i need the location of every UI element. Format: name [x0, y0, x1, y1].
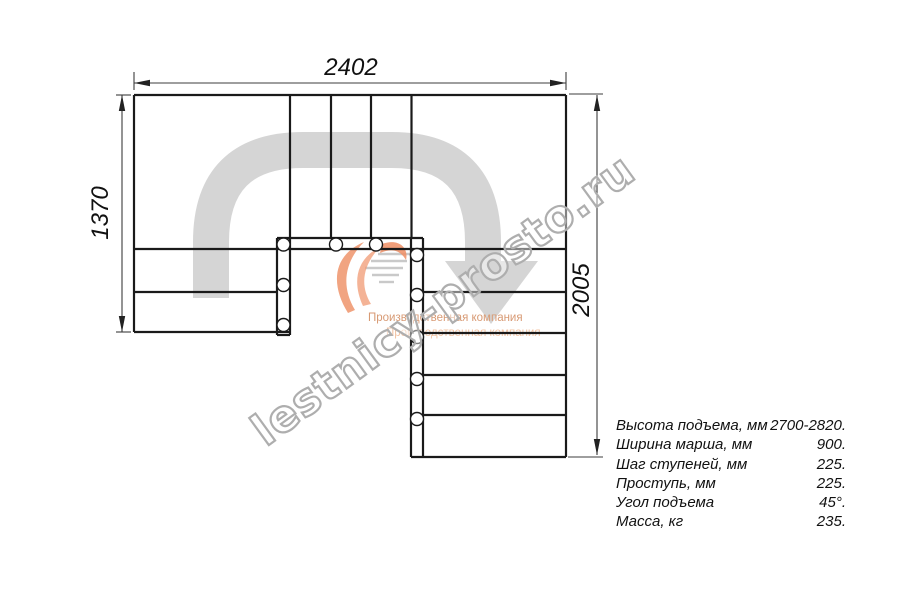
spec-row-mass: Масса, кг 235.: [616, 512, 846, 531]
spec-row-height: Высота подъема, мм 2700-2820.: [616, 416, 846, 435]
spec-row-step-pitch: Шаг ступеней, мм 225.: [616, 455, 846, 474]
spec-value: 900.: [817, 435, 846, 454]
dim-label-left-height: 1370: [87, 186, 114, 240]
spec-value: 235.: [817, 512, 846, 531]
staircase-drawing-canvas: Производственная компания Производственн…: [0, 0, 900, 600]
spec-value: 2700-2820.: [770, 416, 846, 435]
spec-label: Проступь, мм: [616, 474, 716, 493]
spec-row-march-width: Ширина марша, мм 900.: [616, 435, 846, 454]
spec-label: Масса, кг: [616, 512, 683, 531]
spec-row-angle: Угол подъема 45°.: [616, 493, 846, 512]
spec-value: 225.: [817, 474, 846, 493]
dim-label-right-height: 2005: [568, 263, 595, 318]
spec-value: 45°.: [819, 493, 846, 512]
dim-label-width: 2402: [323, 54, 377, 81]
spec-value: 225.: [817, 455, 846, 474]
spec-label: Шаг ступеней, мм: [616, 455, 747, 474]
spec-row-tread: Проступь, мм 225.: [616, 474, 846, 493]
spec-label: Ширина марша, мм: [616, 435, 752, 454]
spec-label: Высота подъема, мм: [616, 416, 768, 435]
spec-label: Угол подъема: [616, 493, 714, 512]
logo-hatch-lines: [365, 254, 410, 282]
spec-table: Высота подъема, мм 2700-2820. Ширина мар…: [616, 416, 846, 532]
